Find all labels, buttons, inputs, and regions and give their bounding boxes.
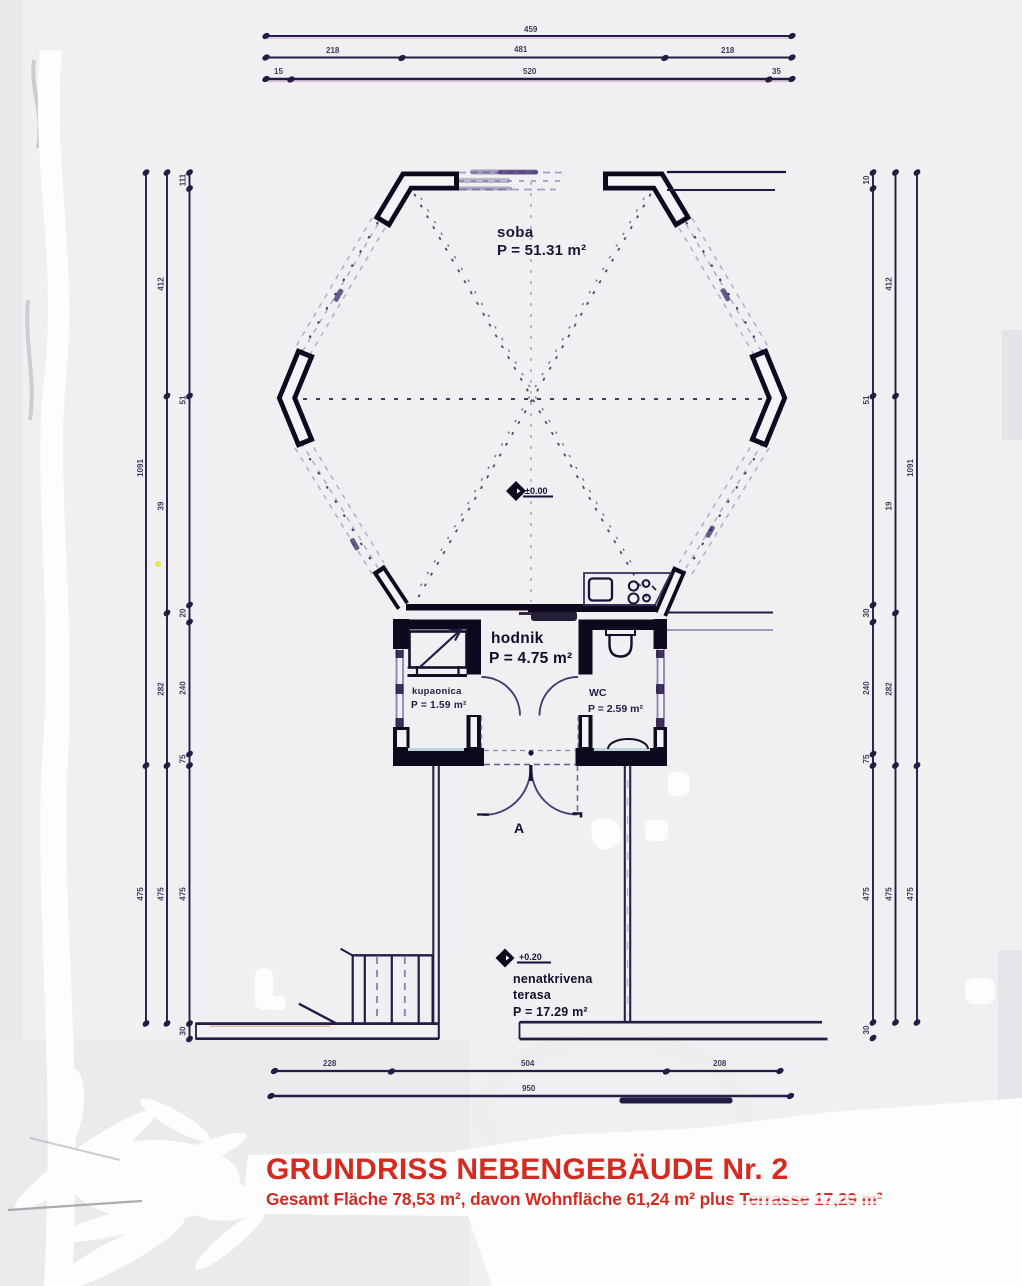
svg-text:35: 35 — [772, 67, 781, 76]
svg-text:39: 39 — [157, 501, 166, 510]
svg-text:218: 218 — [721, 46, 735, 55]
svg-text:208: 208 — [713, 1059, 727, 1068]
svg-text:1091: 1091 — [906, 459, 915, 477]
svg-text:475: 475 — [157, 887, 166, 901]
svg-text:950: 950 — [522, 1084, 536, 1093]
svg-text:10: 10 — [862, 175, 871, 184]
svg-text:240: 240 — [862, 681, 871, 695]
svg-text:282: 282 — [885, 682, 894, 696]
svg-text:P = 17.29 m²: P = 17.29 m² — [513, 1005, 588, 1019]
svg-text:75: 75 — [862, 754, 871, 763]
svg-text:412: 412 — [885, 277, 894, 291]
svg-text:459: 459 — [524, 25, 538, 34]
svg-text:P = 4.75 m²: P = 4.75 m² — [489, 650, 572, 667]
svg-text:520: 520 — [523, 67, 537, 76]
svg-text:475: 475 — [862, 887, 871, 901]
svg-text:1091: 1091 — [136, 459, 145, 477]
svg-text:nenatkrivena: nenatkrivena — [513, 972, 593, 986]
svg-text:WC: WC — [589, 687, 607, 699]
svg-text:481: 481 — [514, 45, 528, 54]
svg-text:51: 51 — [179, 395, 188, 404]
svg-text:terasa: terasa — [513, 988, 552, 1002]
svg-text:475: 475 — [906, 887, 915, 901]
svg-text:412: 412 — [157, 277, 166, 291]
svg-text:30: 30 — [862, 1025, 871, 1034]
svg-text:P = 1.59 m²: P = 1.59 m² — [411, 700, 467, 711]
svg-text:51: 51 — [862, 395, 871, 404]
svg-text:±0.00: ±0.00 — [525, 486, 547, 496]
svg-text:30: 30 — [179, 1026, 188, 1035]
svg-text:475: 475 — [136, 887, 145, 901]
svg-text:19: 19 — [885, 501, 894, 510]
svg-text:kupaonica: kupaonica — [412, 686, 462, 697]
svg-text:475: 475 — [885, 887, 894, 901]
svg-text:475: 475 — [179, 887, 188, 901]
svg-text:240: 240 — [179, 681, 188, 695]
svg-text:504: 504 — [521, 1059, 535, 1068]
svg-text:+0.20: +0.20 — [519, 952, 542, 962]
svg-text:228: 228 — [323, 1059, 337, 1068]
svg-text:hodnik: hodnik — [491, 630, 544, 647]
svg-text:282: 282 — [157, 682, 166, 696]
svg-text:30: 30 — [862, 608, 871, 617]
svg-text:A: A — [514, 820, 524, 836]
svg-text:P = 51.31 m²: P = 51.31 m² — [497, 242, 586, 259]
svg-text:111: 111 — [179, 173, 188, 186]
svg-text:15: 15 — [274, 67, 283, 76]
svg-text:P = 2.59 m²: P = 2.59 m² — [588, 703, 643, 715]
svg-text:20: 20 — [179, 608, 188, 617]
svg-text:75: 75 — [179, 754, 188, 763]
svg-text:soba: soba — [497, 224, 534, 241]
svg-text:GRUNDRISS NEBENGEBÄUDE Nr. 2: GRUNDRISS NEBENGEBÄUDE Nr. 2 — [266, 1153, 788, 1186]
svg-text:218: 218 — [326, 46, 340, 55]
